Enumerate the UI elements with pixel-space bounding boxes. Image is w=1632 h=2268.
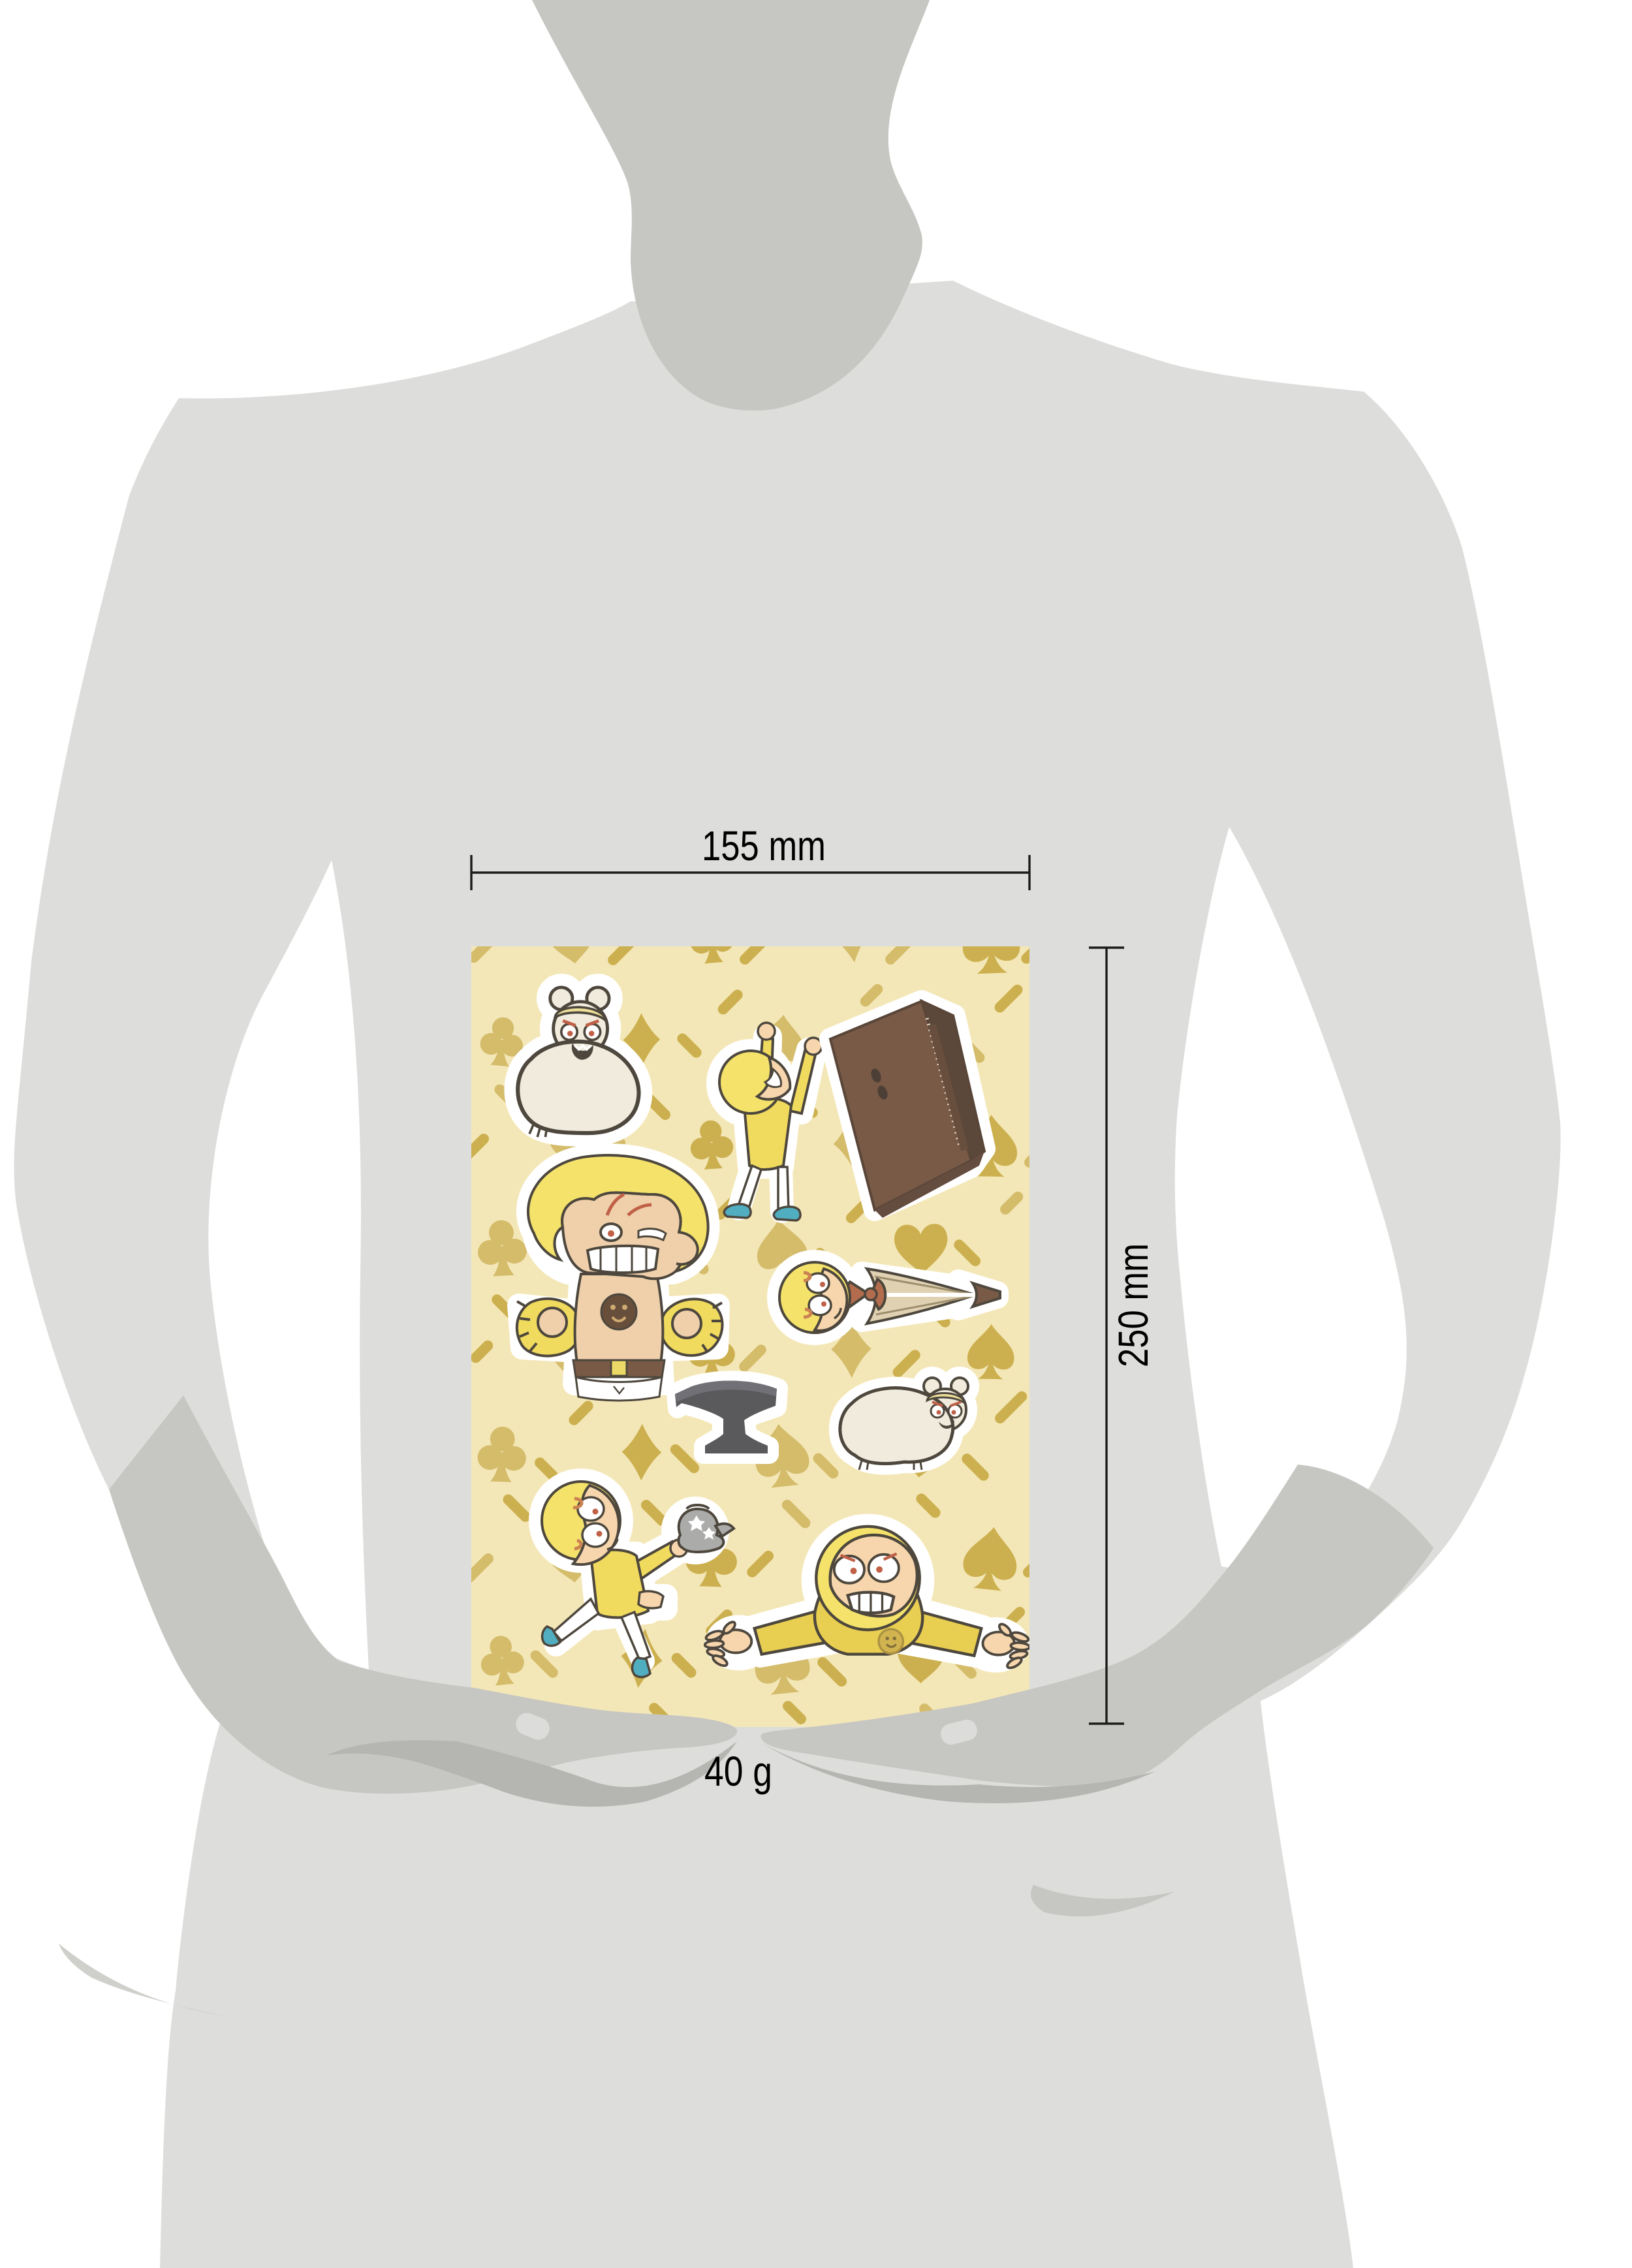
svg-text:40 g: 40 g bbox=[704, 1748, 772, 1795]
svg-text:250 mm: 250 mm bbox=[1110, 1243, 1157, 1367]
svg-text:155 mm: 155 mm bbox=[702, 822, 826, 869]
